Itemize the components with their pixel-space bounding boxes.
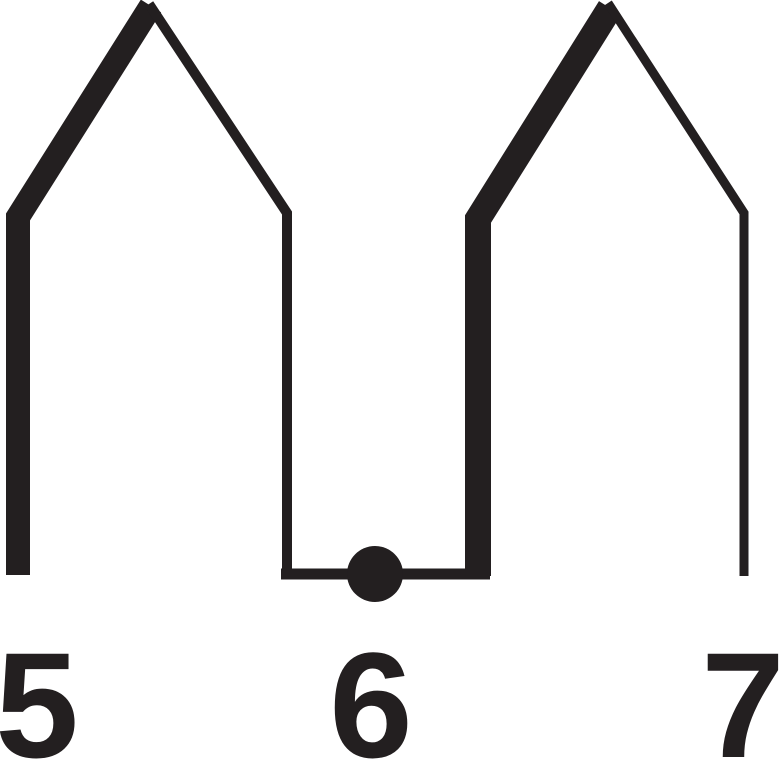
figure-stage: 567	[0, 0, 780, 759]
valley-number-line-figure: 567	[0, 0, 780, 759]
left-hill-thick-stroke	[18, 6, 151, 575]
right-hill-thin-stroke	[608, 3, 744, 576]
left-hill-thin-stroke	[149, 4, 287, 576]
tick-label-7: 7	[701, 621, 780, 759]
right-hill-thick-stroke	[478, 8, 610, 576]
tick-label-6: 6	[329, 621, 412, 759]
marked-point-dot	[347, 546, 403, 602]
tick-label-5: 5	[0, 621, 79, 759]
